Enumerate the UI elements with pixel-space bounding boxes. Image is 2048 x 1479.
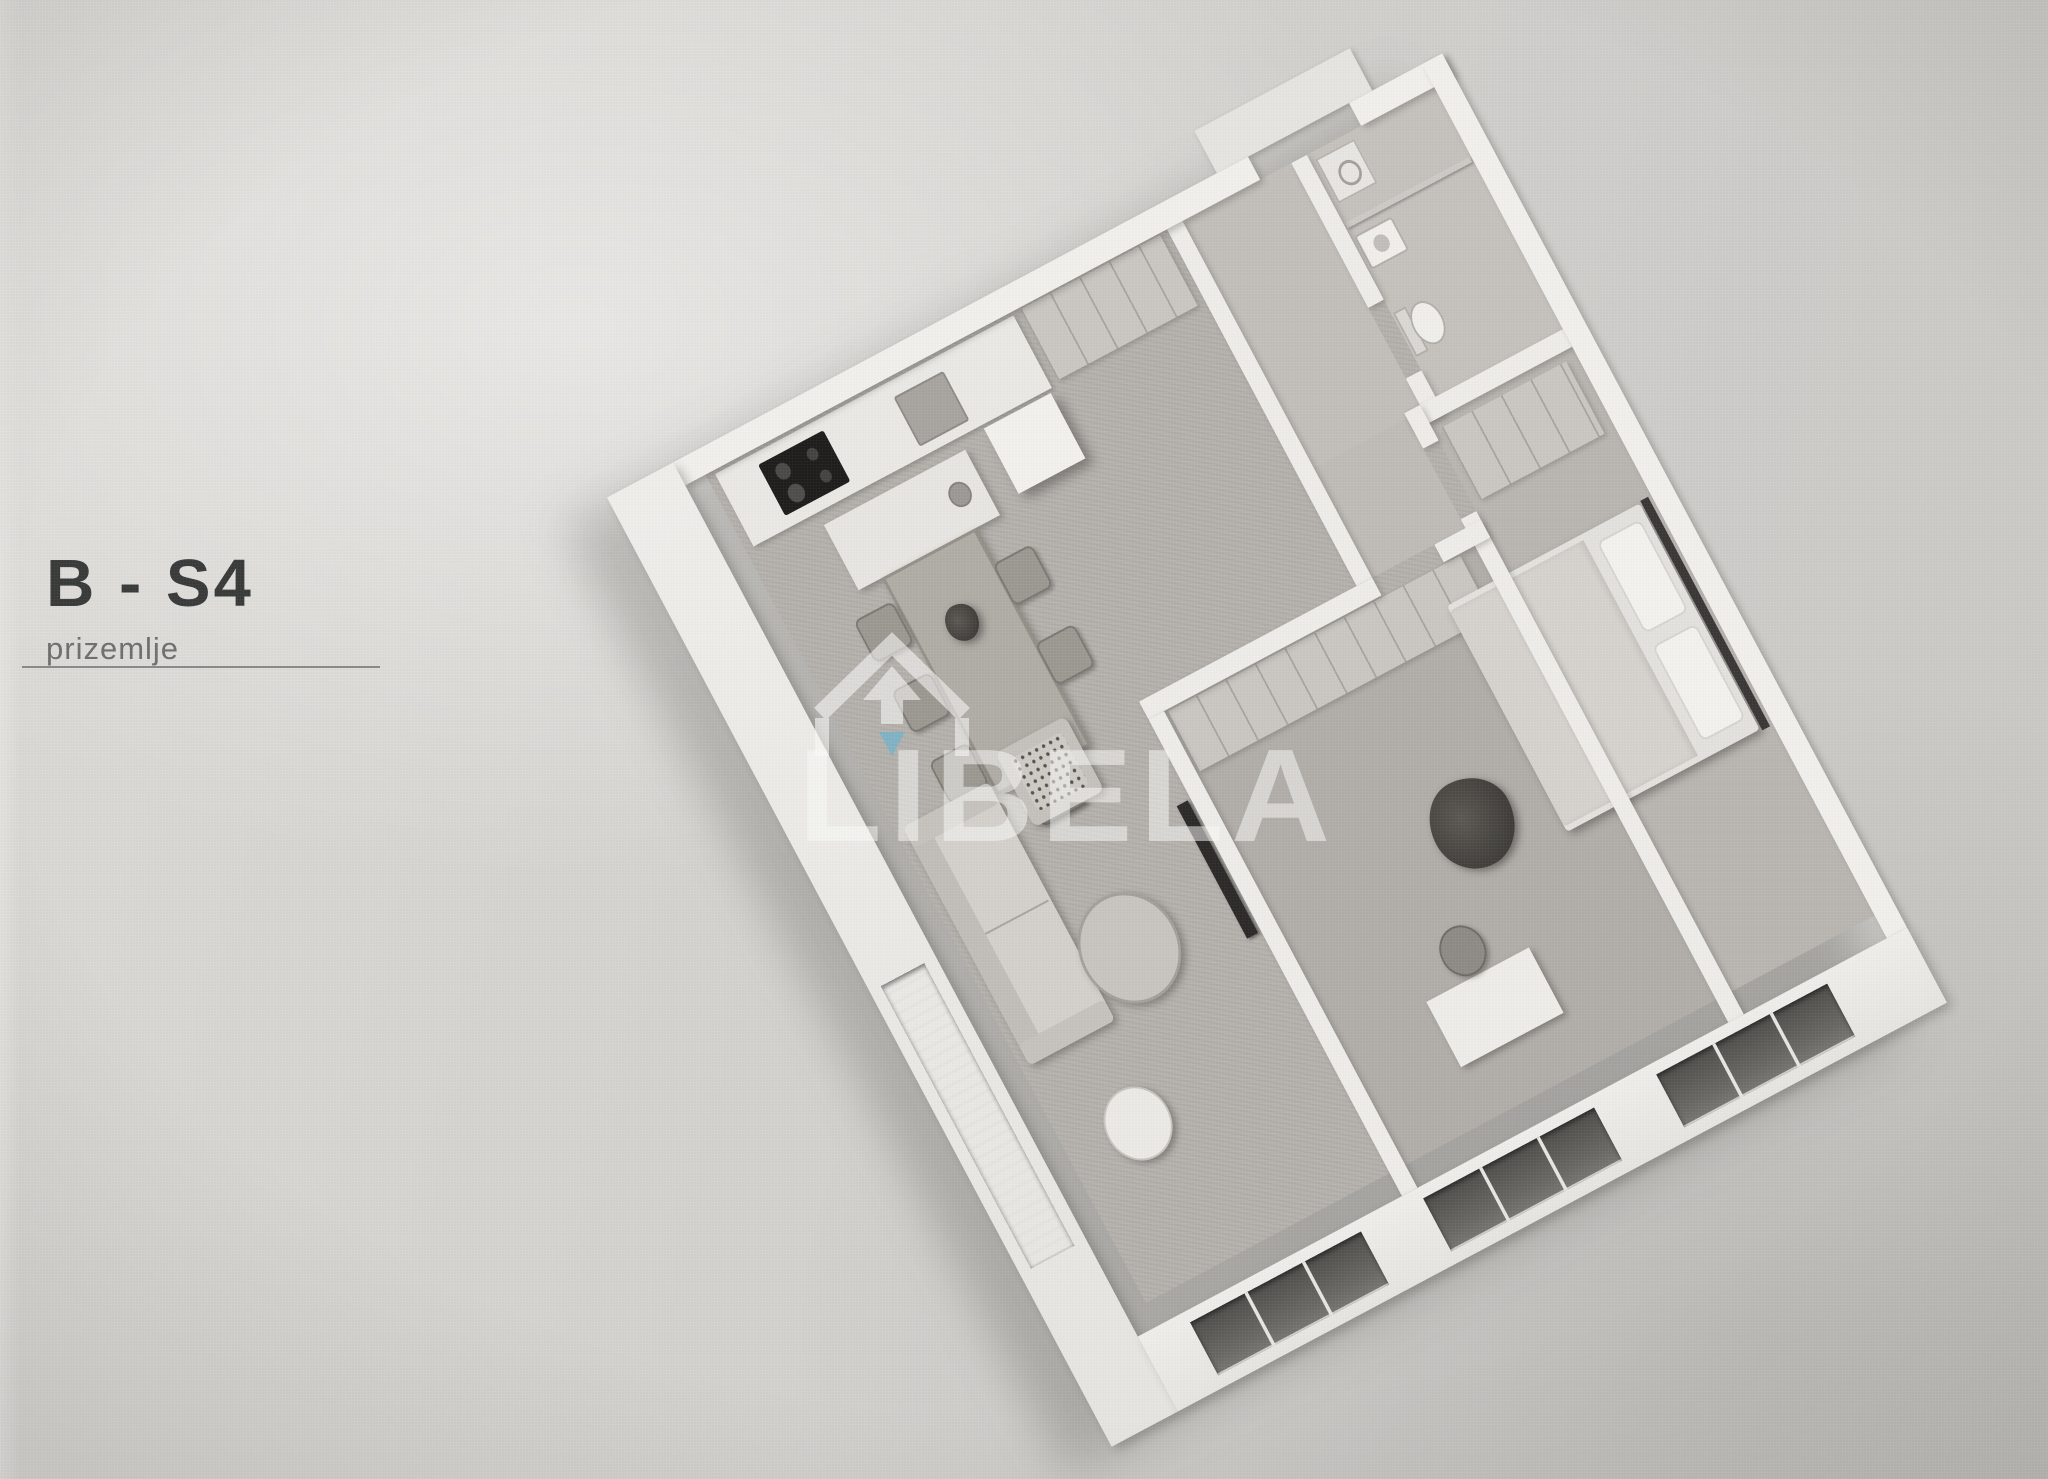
window-mullion (1302, 1261, 1333, 1316)
island-sink (944, 478, 976, 512)
unit-title: B - S4 (46, 550, 254, 617)
label-divider-line (22, 666, 380, 668)
window-mullion (1712, 1043, 1743, 1098)
sofa-cushion-split (985, 900, 1049, 935)
window-mullion (1479, 1167, 1510, 1222)
scanned-listing-page: { "page": { "background_color": "#d4d2ce… (0, 0, 2048, 1479)
window-mullion (1537, 1136, 1568, 1191)
unit-floor-subtitle: prizemlje (46, 631, 254, 667)
floorplan-3d (673, 53, 1907, 1336)
unit-label: B - S4 prizemlje (46, 550, 254, 667)
armchair-patterned-cushion (1010, 732, 1089, 812)
window-mullion (1770, 1013, 1801, 1068)
page-edge-light-strip (0, 0, 20, 1479)
window-mullion (1244, 1292, 1275, 1347)
